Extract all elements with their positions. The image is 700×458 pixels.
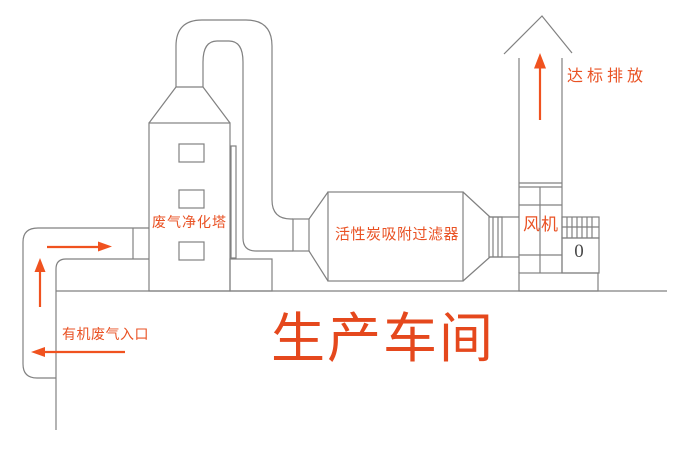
inlet-flow-arrow	[31, 347, 125, 357]
purification-tower	[149, 87, 272, 291]
filter-right-cone	[463, 192, 490, 281]
filter-to-fan-duct	[490, 217, 519, 257]
tower-window-3	[179, 242, 204, 260]
inlet-label: 有机废气入口	[62, 329, 149, 343]
filter-left-flange	[293, 219, 309, 251]
workshop-title: 生产车间	[271, 312, 495, 366]
duct-flow-arrow	[47, 242, 112, 252]
exhaust-stack	[504, 16, 572, 54]
tower-top-cone	[149, 87, 230, 123]
stack-flow-arrow	[534, 53, 546, 120]
filter-right-flange	[489, 217, 502, 257]
filter-label: 活性炭吸附过滤器	[335, 228, 459, 243]
motor-cooling-grille-bars	[562, 217, 599, 238]
tower-window-2	[179, 190, 204, 208]
motor-marking: 0	[565, 242, 593, 261]
fan-base	[519, 273, 598, 291]
filter-left-cone	[309, 192, 328, 281]
transfer-pipe-outer-line	[176, 20, 293, 219]
tower-label: 废气净化塔	[152, 217, 227, 231]
inlet-duct-inner-line	[56, 259, 149, 430]
stack-rain-cap	[504, 16, 572, 54]
tower-base-step	[230, 259, 272, 291]
tower-window-1	[179, 144, 204, 162]
emission-label: 达标排放	[567, 69, 647, 85]
tower-body	[149, 123, 230, 291]
tower-side-gauge	[231, 146, 236, 258]
riser-flow-arrow	[35, 258, 46, 307]
fan-label: 风机	[519, 216, 563, 233]
waste-gas-treatment-diagram: 有机废气入口 废气净化塔 活性炭吸附过滤器 风机 达标排放 0 生产车间	[0, 0, 700, 458]
filter-right-flange-ribs	[493, 217, 498, 257]
